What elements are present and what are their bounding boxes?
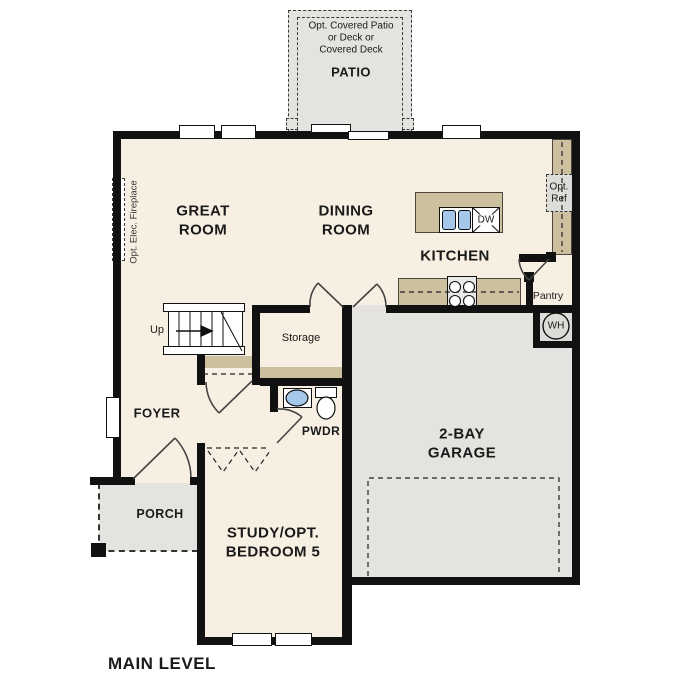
dining-room-label-line1: DINING bbox=[319, 203, 374, 220]
plan-detail-layer bbox=[0, 0, 687, 687]
patio-label: PATIO bbox=[331, 65, 371, 80]
kitchen-label: KITCHEN bbox=[420, 248, 489, 265]
front-door-arc bbox=[133, 438, 191, 479]
storage-door-arc bbox=[310, 283, 343, 307]
opt-french-doors bbox=[207, 448, 270, 472]
powder-door-arc bbox=[277, 409, 302, 443]
pantry-label: Pantry bbox=[533, 290, 563, 302]
stairs-up-arrow-icon bbox=[176, 326, 212, 336]
stove-burners-icon bbox=[450, 282, 475, 307]
dashed-details bbox=[203, 142, 562, 576]
garage-entry-door-arc bbox=[353, 284, 386, 307]
pantry-door-arc bbox=[519, 259, 549, 280]
powder-label: PWDR bbox=[302, 424, 340, 438]
powder-sink-icon bbox=[286, 390, 308, 406]
garage-door-dashed-outline bbox=[368, 478, 559, 576]
water-heater-label: WH bbox=[548, 321, 565, 332]
toilet-bowl-icon bbox=[317, 397, 335, 419]
fixtures bbox=[286, 208, 569, 419]
study-label-line2: BEDROOM 5 bbox=[226, 544, 320, 561]
opt-fireplace-label: Opt. Elec. Fireplace bbox=[129, 180, 140, 263]
hall-closet-door-arc bbox=[206, 381, 252, 413]
study-label-line1: STUDY/OPT. bbox=[227, 525, 319, 542]
stairs-up-label: Up bbox=[150, 324, 164, 336]
opt-ref-label-line2: Ref bbox=[551, 194, 567, 205]
garage-label-line2: GARAGE bbox=[428, 445, 496, 462]
plan-title: MAIN LEVEL bbox=[108, 654, 216, 674]
patio-note-line1: Opt. Covered Patio bbox=[308, 21, 393, 32]
dishwasher-label: DW bbox=[477, 215, 496, 226]
foyer-label: FOYER bbox=[134, 406, 181, 421]
garage-label-line1: 2-BAY bbox=[439, 426, 485, 443]
floor-plan: Opt. Covered Patio or Deck or Covered De… bbox=[0, 0, 687, 687]
porch-label: PORCH bbox=[136, 507, 183, 521]
great-room-label-line1: GREAT bbox=[176, 203, 229, 220]
storage-label: Storage bbox=[282, 332, 321, 344]
patio-note-line2: or Deck or bbox=[328, 33, 374, 44]
dining-room-label-line2: ROOM bbox=[322, 222, 370, 239]
great-room-label-line2: ROOM bbox=[179, 222, 227, 239]
patio-note-line3: Covered Deck bbox=[319, 45, 382, 56]
opt-ref-label-line1: Opt. bbox=[550, 182, 569, 193]
